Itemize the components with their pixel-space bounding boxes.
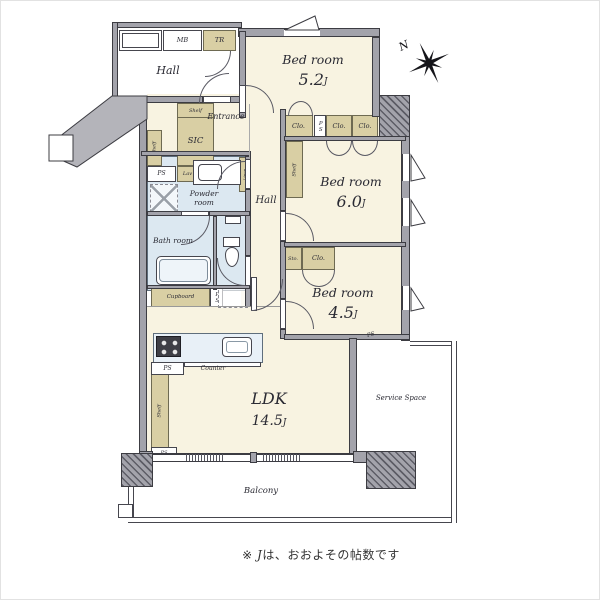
wall <box>112 22 242 28</box>
washer-space <box>150 184 178 213</box>
counter-label: Counter <box>191 364 235 374</box>
corridor-stub-box <box>49 135 73 161</box>
wall <box>141 151 251 156</box>
shelf-entry-left: Shelf <box>147 130 162 166</box>
ps-kitchen-box: PS <box>151 362 184 375</box>
inner-hall-label: Hall <box>248 193 284 209</box>
bedroom-60-label: Bed room <box>309 173 393 189</box>
bedroom-52-size: 5.2J <box>275 70 351 90</box>
compass-north-label: N <box>396 38 411 54</box>
bedroom-45-label: Bed room <box>301 284 385 300</box>
wall <box>284 334 410 340</box>
balcony-railing-bottom <box>128 517 457 523</box>
bedroom-60-size: 6.0J <box>313 192 389 212</box>
balcony-wall-right <box>366 451 416 489</box>
bedroom-52-top-window <box>284 29 320 37</box>
footnote: ※ Jは、おおよその帖数です <box>121 546 521 564</box>
bedroom-60-window <box>402 154 410 181</box>
bedroom-52-label: Bed room <box>271 51 355 67</box>
common-hall-label: Hall <box>138 63 198 79</box>
balcony-wall-left <box>121 453 153 487</box>
powder-room-label: Powder room <box>181 187 227 209</box>
service-space-railing-top <box>410 341 451 346</box>
bathtub <box>156 256 211 285</box>
wall <box>141 96 203 103</box>
trunk-room-box: TR <box>203 30 236 51</box>
service-space-label: Service Space <box>369 392 433 404</box>
entrance-door-swing <box>199 73 229 103</box>
closet-box-1: Clo. <box>284 115 313 138</box>
balcony-railing-right <box>451 341 457 523</box>
cupboard-box: Cupboard <box>151 288 210 307</box>
window-mullion <box>250 452 257 463</box>
wall <box>284 242 406 247</box>
common-corridor-diagonal-wall <box>59 96 147 167</box>
ps-bedroom-52-box: PS <box>314 115 326 138</box>
railing-corner-box <box>118 504 133 518</box>
footnote-prefix: ※ <box>242 548 257 562</box>
duct-shaft <box>379 95 410 140</box>
meter-box <box>119 30 162 51</box>
bath-room-label: Bath room <box>153 228 193 252</box>
wall <box>213 216 217 290</box>
shelf-ldk: Shelf <box>151 374 169 448</box>
ps-entry-box: PS <box>147 166 176 182</box>
window-sill-hatch <box>186 454 224 461</box>
ldk-floor <box>147 307 353 457</box>
footnote-text: は、おおよその帖数です <box>262 548 400 562</box>
bedroom-60-window <box>402 198 410 226</box>
closet-box-2: Clo. <box>326 115 352 138</box>
closet-box-3: Clo. <box>352 115 378 138</box>
ldk-label: LDK <box>235 389 303 409</box>
stove <box>156 336 181 357</box>
powder-room-door-leaf <box>245 159 251 189</box>
toilet-shelf <box>225 216 241 224</box>
toilet-tank <box>223 237 240 247</box>
bedroom-52-door-leaf <box>239 85 246 113</box>
wall <box>112 22 118 104</box>
window-marker <box>411 200 425 226</box>
window-marker <box>411 155 425 181</box>
wall <box>147 285 250 289</box>
mb-box: MB <box>163 30 202 51</box>
window-sill-hatch <box>263 454 301 461</box>
shelf-bedroom-60: Shelf <box>286 141 303 198</box>
wall <box>349 338 357 456</box>
kitchen-sink <box>222 337 252 357</box>
bedroom-45-window <box>402 286 410 310</box>
balcony-label: Balcony <box>226 485 296 498</box>
closet-box-4: Clo. <box>302 247 335 270</box>
sic-box: SIC <box>177 117 214 166</box>
bedroom-45-size: 4.5J <box>305 303 381 323</box>
entrance-label: Entrance <box>195 111 257 123</box>
wall <box>147 211 183 216</box>
floor-plan: TR Shelf SIC Shelf Lav Linen Cupboard Sh… <box>0 0 600 600</box>
window-marker <box>411 288 424 311</box>
compass-icon: N <box>396 34 458 92</box>
wall <box>239 31 246 87</box>
ldk-size: 14.5J <box>235 411 303 431</box>
storage-box: Sto. <box>284 247 302 270</box>
